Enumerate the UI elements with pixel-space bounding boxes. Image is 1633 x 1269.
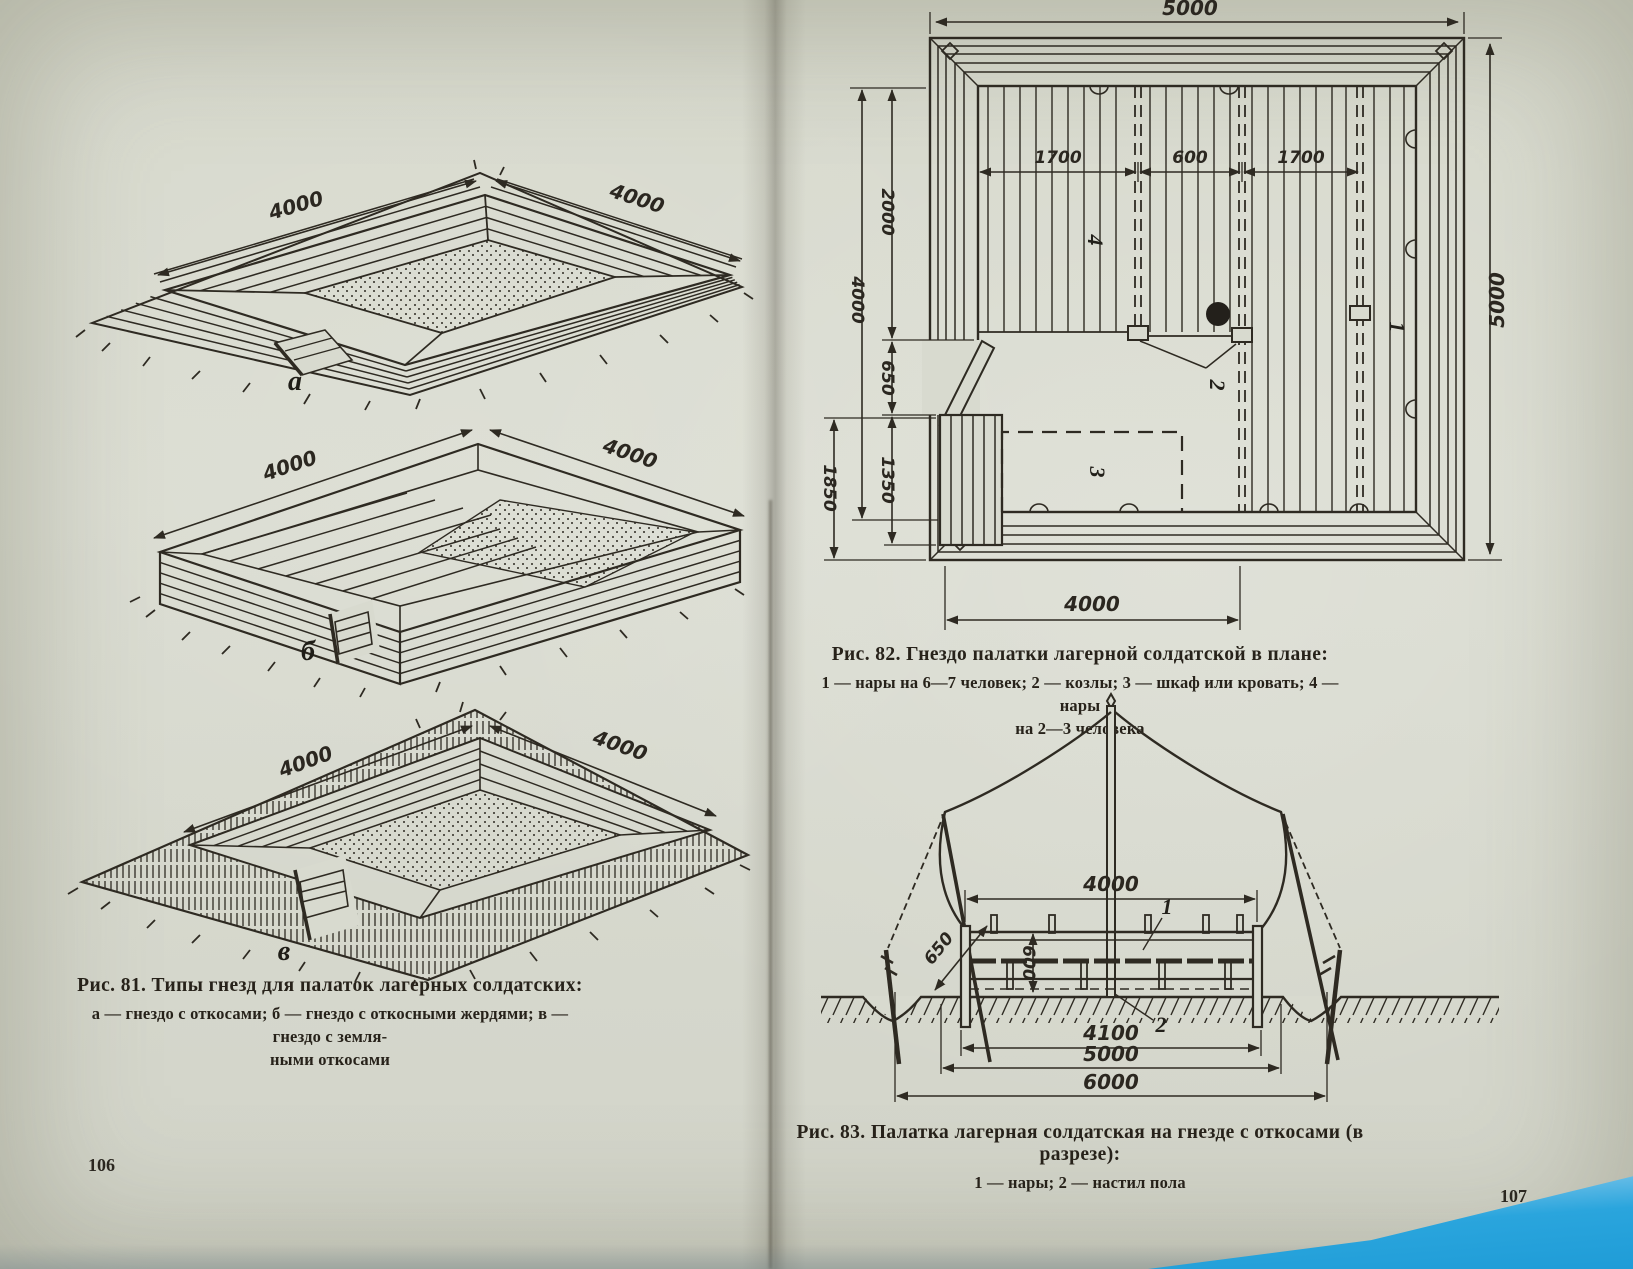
dim-label: 600 (1172, 148, 1208, 168)
dim-label: 5000 (1162, 0, 1218, 20)
dim-label: 4000 (265, 186, 326, 225)
dim-label: 1350 (877, 456, 897, 503)
book-scan: 4000 4000 а (0, 0, 1633, 1269)
dim-label: 4000 (1063, 592, 1120, 616)
slope-pole-right (1283, 814, 1338, 1060)
end-post-right (1253, 926, 1262, 1027)
figure-83-section: 1 2 4000 650 600 4100 5000 6000 (793, 692, 1633, 1112)
dim-label: 4000 (606, 178, 667, 218)
porch (940, 415, 1002, 545)
dim-label: 4000 (599, 433, 660, 474)
part-label-1: 1 (1385, 322, 1410, 333)
sand-floor (420, 500, 695, 587)
end-post-left (961, 926, 970, 1027)
label-2-leader (1140, 341, 1236, 368)
figure-81-caption: Рис. 81. Типы гнезд для палаток лагерных… (70, 975, 590, 1071)
figure-83-caption: Рис. 83. Палатка лагерная солдатская на … (790, 1122, 1370, 1195)
dimension-b: 4000 4000 (154, 430, 744, 538)
part-label-3: 3 (1085, 466, 1110, 478)
drawing-v-letter: в (278, 936, 291, 967)
figure-81-caption-title: Рис. 81. Типы гнезд для палаток лагерных… (70, 975, 590, 997)
figure-83-caption-title: Рис. 83. Палатка лагерная солдатская на … (790, 1122, 1370, 1166)
dim-label: 1700 (1034, 148, 1081, 168)
stove-mark (1206, 302, 1230, 326)
center-pole (1107, 706, 1115, 997)
guy-rope-left (888, 812, 945, 948)
dim-label: 4000 (1082, 872, 1139, 896)
dim-label: 2000 (877, 188, 897, 235)
figure-82-plan: 4 1 2 3 5000 5000 4000 1700 600 1700 (790, 0, 1630, 648)
bunk1-planks (1252, 86, 1404, 512)
dim-label: 5000 (1083, 1042, 1139, 1066)
dim-label: 1700 (1277, 148, 1324, 168)
bunk4-planks (988, 86, 1230, 332)
dim-label: 600 (1018, 945, 1038, 981)
book-gutter-crease (769, 500, 772, 1269)
corner-blocks (942, 43, 1452, 550)
plan-part-labels: 4 1 2 3 (1083, 234, 1410, 478)
figure-81-caption-legend-line2: ными откосами (70, 1049, 590, 1072)
dim-label: 650 (920, 929, 958, 969)
frame-mitres (930, 38, 1464, 560)
figure-83-caption-legend: 1 — нары; 2 — настил пола (790, 1172, 1370, 1195)
part-label-4: 4 (1083, 234, 1108, 246)
dim-label: 5000 (1485, 272, 1509, 328)
dim-label: 4000 (259, 445, 320, 486)
dim-label: 4000 (589, 725, 650, 766)
part-label-1: 1 (1162, 894, 1173, 919)
dim-label: 1850 (819, 464, 839, 511)
canvas-right (1115, 712, 1286, 929)
book-gutter-shadow (742, 0, 806, 1269)
wall-scallops (1030, 86, 1416, 512)
figure-81-drawing-a: 4000 4000 а (80, 105, 760, 395)
guy-rope-right (1281, 812, 1340, 948)
page-number-left: 106 (88, 1155, 115, 1176)
figure-81-drawing-v: 4000 4000 в (60, 640, 760, 975)
part-label-2: 2 (1205, 379, 1230, 391)
figure-81-caption-legend-line1: а — гнездо с откосами; б — гнездо с отко… (70, 1003, 590, 1049)
dim-label: 650 (877, 360, 897, 396)
dim-label: 6000 (1083, 1070, 1139, 1094)
frame-boards (930, 38, 1464, 560)
figure-82-caption-title: Рис. 82. Гнездо палатки лагерной солдатс… (800, 644, 1360, 666)
part-label-2: 2 (1155, 1012, 1167, 1037)
dim-label: 4000 (847, 275, 867, 323)
